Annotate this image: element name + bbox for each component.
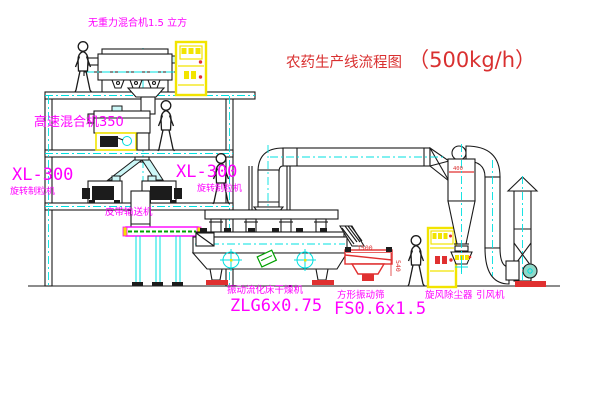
control-cabinet-top — [176, 42, 206, 95]
person-second-floor — [158, 101, 175, 151]
page-title: 农药生产线流程图 （500kg/h） — [286, 48, 536, 72]
title-prefix: 农药生产线流程图 — [286, 54, 402, 71]
belt-conveyor — [123, 227, 201, 286]
title-capacity: （500kg/h） — [408, 48, 536, 72]
downcomer-pipe — [485, 160, 509, 284]
label-granulator-mid-model: XL-300 — [176, 162, 237, 182]
person-top-floor — [75, 42, 92, 92]
fluid-bed-dryer — [193, 210, 347, 285]
dim-screen-length: 1500 — [357, 244, 373, 252]
induced-draft-fan — [506, 261, 546, 287]
label-top-mixer: 无重力混合机1.5 立方 — [88, 16, 187, 29]
label-screen-model: FS0.6x1.5 — [334, 299, 426, 319]
granulator-left — [82, 176, 122, 203]
label-fan: 引风机 — [476, 289, 505, 301]
exhaust-duct — [249, 145, 449, 217]
label-belt-conveyor: 皮带输送机 — [105, 206, 153, 218]
diagram-drawing: 无重力混合机1.5 立方 农药生产线流程图 （500kg/h） 高速混合机350… — [0, 0, 600, 403]
dim-cyclone: 400 — [453, 166, 463, 172]
person-ground — [408, 236, 425, 286]
label-granulator-left-model: XL-300 — [12, 165, 73, 185]
vibrating-screen — [345, 247, 392, 281]
label-cyclone: 旋风除尘器 — [425, 289, 473, 301]
label-granulator-left-name: 旋转制粒机 — [10, 185, 55, 197]
dim-screen-height: 540 — [394, 260, 402, 272]
cad-flow-diagram: 无重力混合机1.5 立方 农药生产线流程图 （500kg/h） 高速混合机350… — [0, 0, 600, 403]
label-granulator-mid-name: 旋转制粒机 — [197, 182, 242, 194]
label-fluid-bed-model: ZLG6x0.75 — [230, 296, 322, 316]
control-cabinet-ground — [428, 228, 456, 287]
label-high-speed-mixer: 高速混合机350 — [34, 114, 124, 130]
label-fluid-bed-name: 振动流化床干燥机 — [227, 284, 304, 296]
